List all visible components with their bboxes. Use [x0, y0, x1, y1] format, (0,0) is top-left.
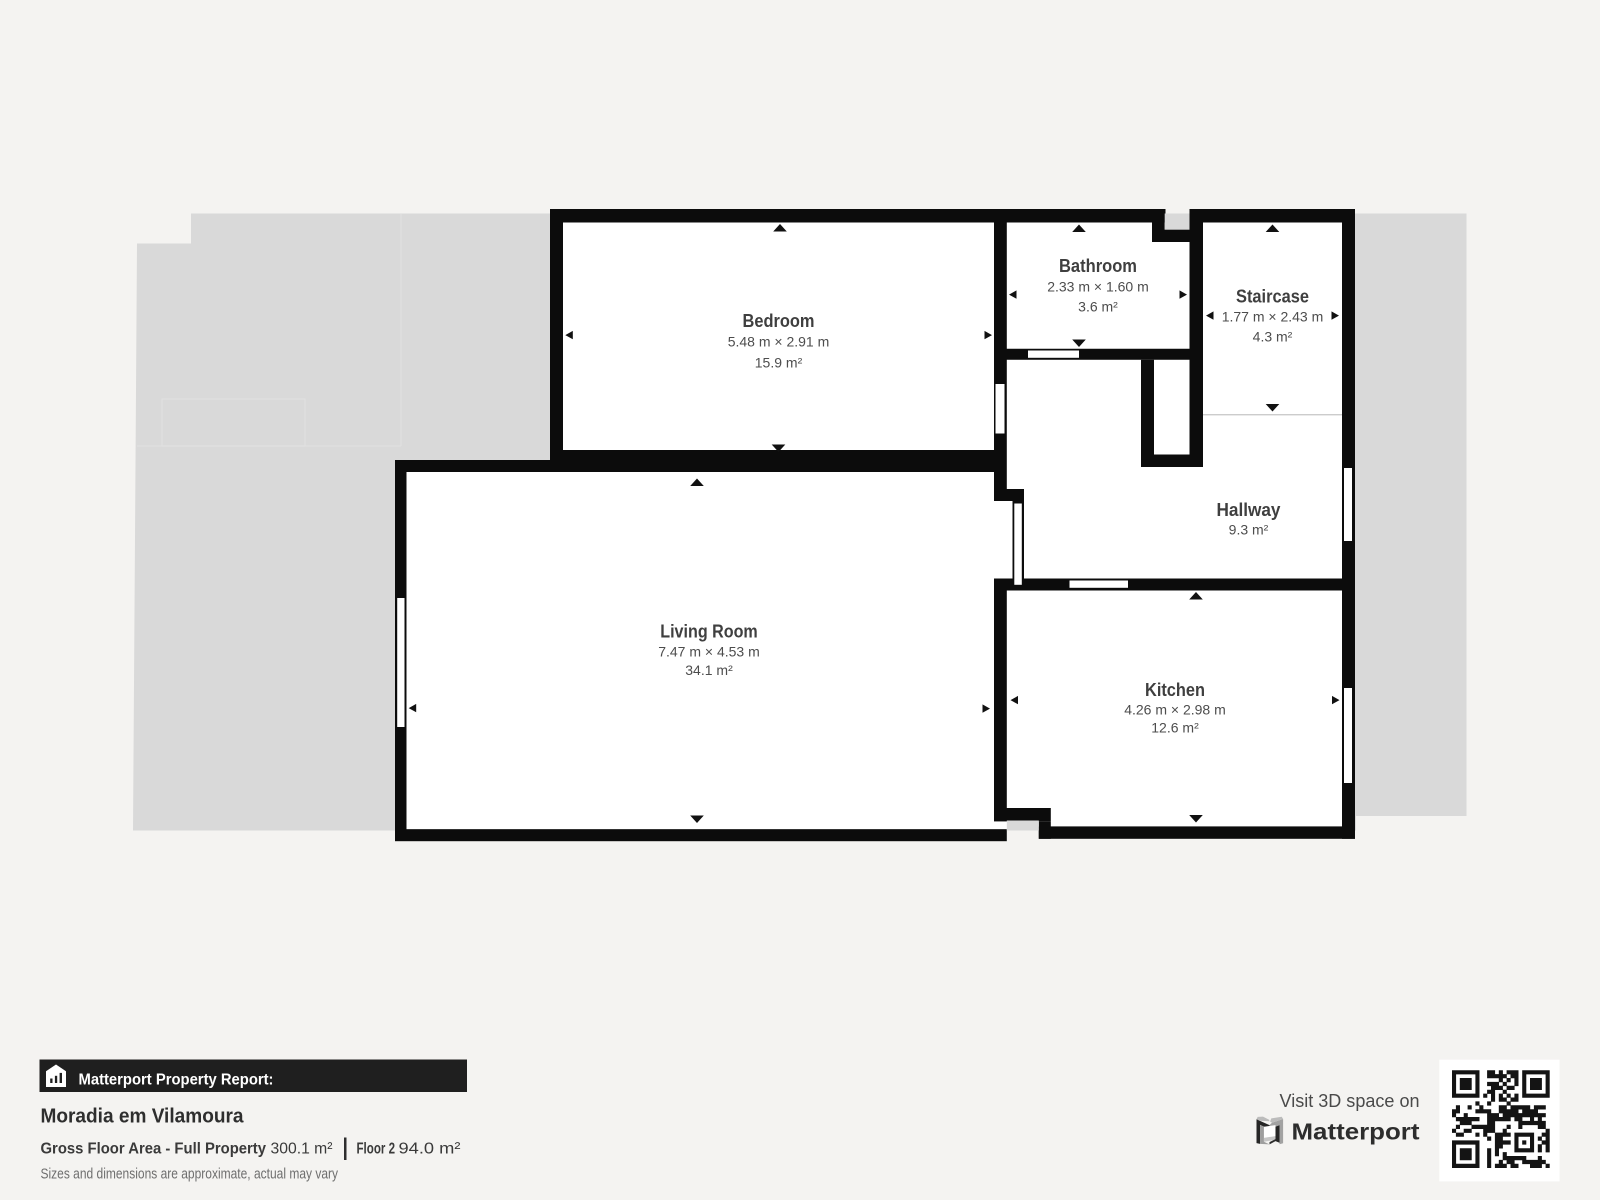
svg-text:7.47 m × 4.53 m: 7.47 m × 4.53 m: [658, 644, 760, 660]
svg-text:9.3 m²: 9.3 m²: [1229, 522, 1269, 538]
svg-text:Bathroom: Bathroom: [1059, 256, 1137, 276]
svg-text:34.1 m²: 34.1 m²: [685, 662, 733, 678]
svg-text:5.48 m × 2.91 m: 5.48 m × 2.91 m: [728, 334, 830, 350]
svg-text:Staircase: Staircase: [1236, 287, 1309, 307]
svg-text:94.0 m²: 94.0 m²: [399, 1141, 462, 1158]
svg-text:Living Room: Living Room: [660, 622, 758, 642]
svg-text:Matterport Property Report:: Matterport Property Report:: [79, 1072, 274, 1089]
svg-text:4.26 m × 2.98 m: 4.26 m × 2.98 m: [1124, 702, 1226, 718]
svg-text:4.3 m²: 4.3 m²: [1253, 329, 1293, 345]
svg-text:15.9 m²: 15.9 m²: [755, 355, 803, 371]
svg-text:Sizes and dimensions are appro: Sizes and dimensions are approximate, ac…: [41, 1166, 339, 1183]
svg-text:Moradia em Vilamoura: Moradia em Vilamoura: [41, 1105, 245, 1128]
svg-text:300.1 m²: 300.1 m²: [271, 1141, 334, 1158]
svg-text:12.6 m²: 12.6 m²: [1151, 720, 1199, 736]
svg-text:Kitchen: Kitchen: [1145, 680, 1205, 700]
svg-text:Floor 2: Floor 2: [357, 1141, 396, 1158]
svg-text:Gross Floor Area - Full Proper: Gross Floor Area - Full Property: [41, 1141, 267, 1158]
svg-text:2.33 m × 1.60 m: 2.33 m × 1.60 m: [1047, 279, 1149, 295]
svg-text:Matterport: Matterport: [1292, 1119, 1420, 1145]
svg-text:3.6 m²: 3.6 m²: [1078, 299, 1118, 315]
svg-text:Hallway: Hallway: [1217, 500, 1281, 520]
svg-text:1.77 m × 2.43 m: 1.77 m × 2.43 m: [1222, 309, 1324, 325]
svg-text:Bedroom: Bedroom: [743, 311, 815, 331]
svg-text:Visit 3D space on: Visit 3D space on: [1280, 1091, 1420, 1111]
